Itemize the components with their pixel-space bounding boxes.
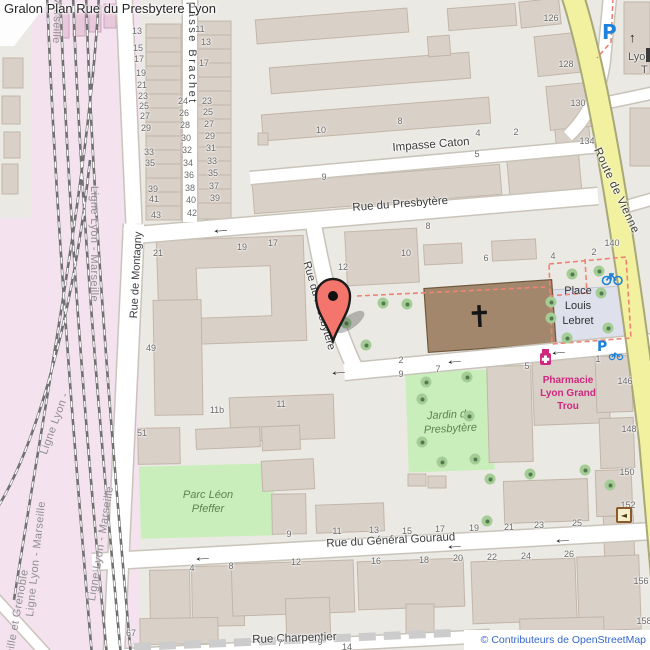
jardin-du-presbytere [405, 370, 494, 473]
bicycle-parking-icon [601, 271, 624, 286]
stop-name-line2: T [641, 64, 648, 76]
poi-glyph: ◄ [621, 511, 627, 520]
parking-icon: P [602, 20, 617, 44]
place-louis-lebret [552, 286, 625, 344]
page-title: Gralon Plan Rue du Presbytere Lyon [4, 1, 216, 16]
church-cross-icon: ✝ [466, 299, 493, 335]
attribution-bar: © Contributeurs de OpenStreetMap [464, 630, 650, 650]
parc-leon-pfeffer [139, 463, 275, 538]
map[interactable]: Impasse CatonRue du PresbytèreRue du Pre… [0, 0, 650, 650]
pharmacy-icon [537, 348, 554, 366]
parking-bike-icon: P [597, 339, 607, 355]
stop-icon-fragment [646, 48, 650, 62]
bicycle-mini-icon [608, 351, 624, 361]
attribution-link[interactable]: © Contributeurs de OpenStreetMap [481, 634, 646, 646]
poi-icon: ◄ [616, 507, 632, 523]
map-marker[interactable] [312, 275, 374, 347]
